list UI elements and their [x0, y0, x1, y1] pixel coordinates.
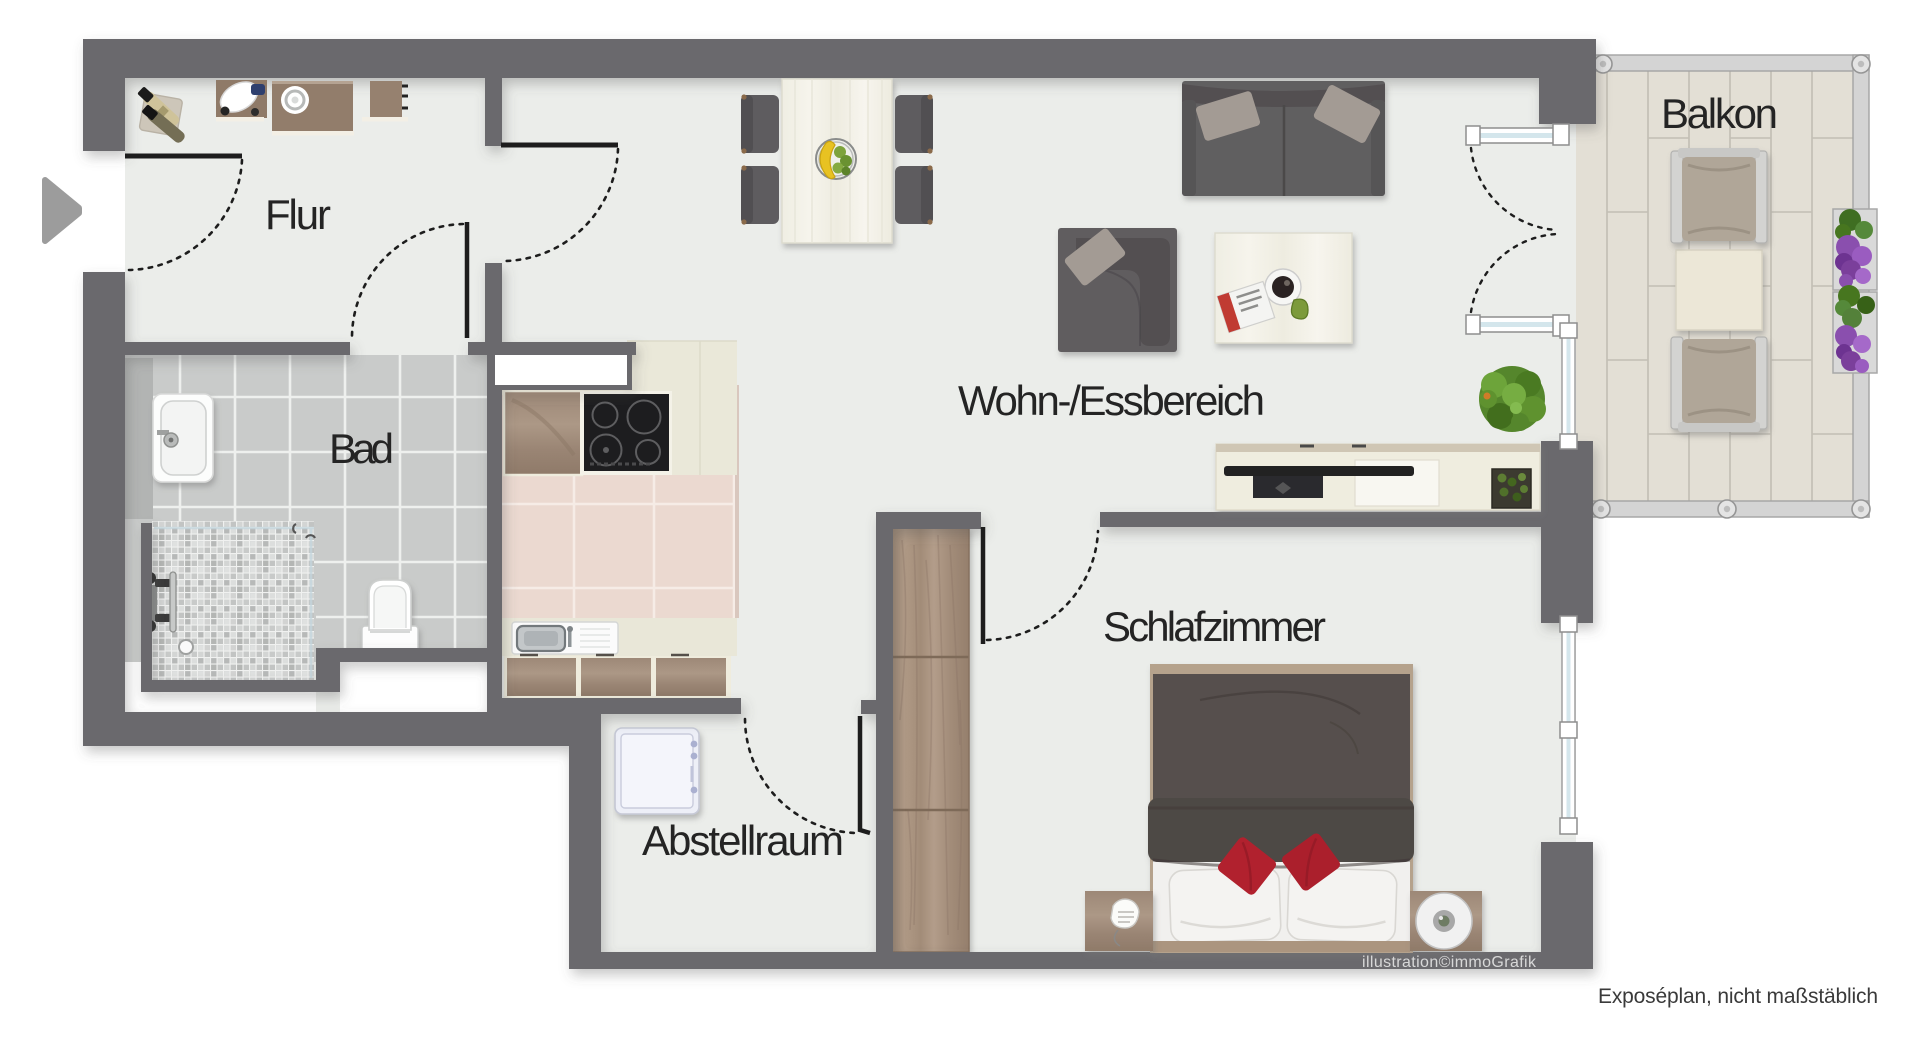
svg-text:Flur: Flur	[265, 191, 331, 238]
svg-text:Abstellraum: Abstellraum	[642, 817, 844, 864]
svg-text:Exposéplan, nicht maßstäblich: Exposéplan, nicht maßstäblich	[1598, 985, 1878, 1008]
svg-text:Wohn-/Essbereich: Wohn-/Essbereich	[958, 377, 1265, 424]
svg-text:Schlafzimmer: Schlafzimmer	[1103, 603, 1326, 650]
svg-text:illustration©immoGrafik: illustration©immoGrafik	[1362, 954, 1537, 971]
svg-text:Balkon: Balkon	[1661, 90, 1778, 137]
svg-text:Bad: Bad	[329, 425, 394, 472]
